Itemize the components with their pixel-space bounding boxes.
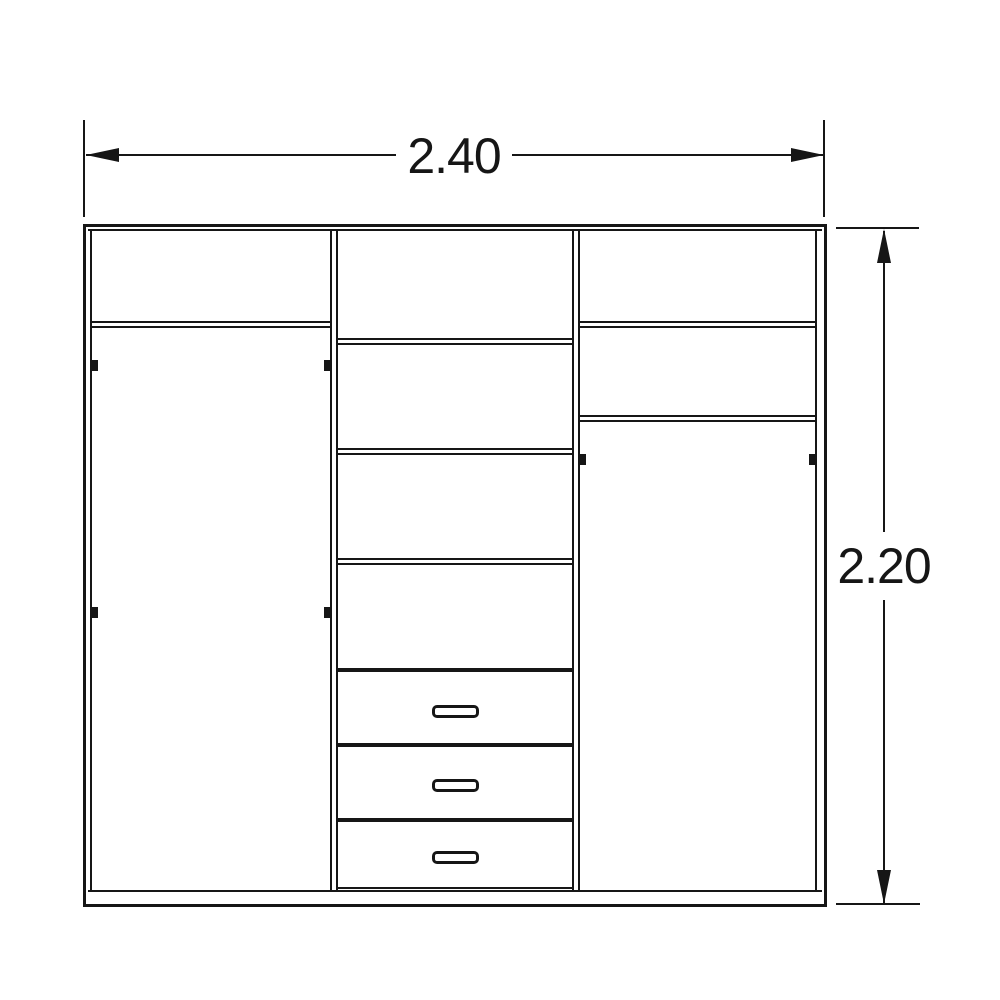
rod-end-cap — [580, 454, 586, 465]
rod-end-cap — [92, 360, 98, 371]
wardrobe-technical-drawing: 2.40 2.20 — [0, 0, 1000, 1000]
left-section-shelf-bottom-line — [92, 326, 330, 328]
middle-shelf-2-top-line — [338, 448, 572, 450]
middle-shelf-2-bottom-line — [338, 453, 572, 455]
width-dimension-line-right-segment — [512, 154, 823, 156]
height-dimension-line-top-segment — [883, 231, 885, 532]
middle-shelf-1-top-line — [338, 338, 572, 340]
rod-end-cap — [324, 607, 330, 618]
drawer-divider-1 — [338, 743, 572, 747]
drawer-1-handle — [432, 705, 479, 718]
width-extension-line-right — [823, 120, 825, 217]
drawer-3-handle — [432, 851, 479, 864]
bottom-panel-inner-line — [88, 890, 822, 892]
width-dimension-label: 2.40 — [403, 131, 504, 181]
drawer-2-handle — [432, 779, 479, 792]
right-section-shelf-1-bottom-line — [580, 326, 815, 328]
top-panel-inner-line — [88, 229, 822, 231]
height-dimension-label: 2.20 — [833, 541, 934, 591]
left-section-shelf-top-line — [92, 321, 330, 323]
rod-end-cap — [324, 360, 330, 371]
middle-shelf-1-bottom-line — [338, 343, 572, 345]
right-section-shelf-2-top-line — [580, 415, 815, 417]
height-dimension-line-bottom-segment — [883, 600, 885, 903]
drawer-stack-top-line — [338, 668, 572, 672]
arrow-right-icon — [791, 148, 824, 162]
right-section-shelf-2-bottom-line — [580, 420, 815, 422]
middle-shelf-3-bottom-line — [338, 563, 572, 565]
right-section-hanging-rod — [580, 457, 815, 462]
middle-shelf-3-top-line — [338, 558, 572, 560]
divider-right-inner-line — [572, 229, 574, 890]
rod-end-cap — [809, 454, 815, 465]
width-dimension-line-left-segment — [86, 154, 396, 156]
arrow-left-icon — [86, 148, 119, 162]
right-side-panel-inner-line — [815, 229, 817, 892]
divider-right-outer-line — [578, 229, 580, 890]
arrow-up-icon — [877, 229, 891, 263]
right-section-shelf-1-top-line — [580, 321, 815, 323]
width-extension-line-left — [83, 120, 85, 217]
drawer-divider-2 — [338, 818, 572, 822]
left-side-panel-inner-line — [90, 229, 92, 892]
divider-left-outer-line — [330, 229, 332, 890]
rod-end-cap — [92, 607, 98, 618]
drawer-stack-bottom-line — [338, 887, 572, 889]
arrow-down-icon — [877, 870, 891, 904]
left-section-hanging-rod-lower — [92, 610, 330, 615]
left-section-hanging-rod-upper — [92, 363, 330, 368]
